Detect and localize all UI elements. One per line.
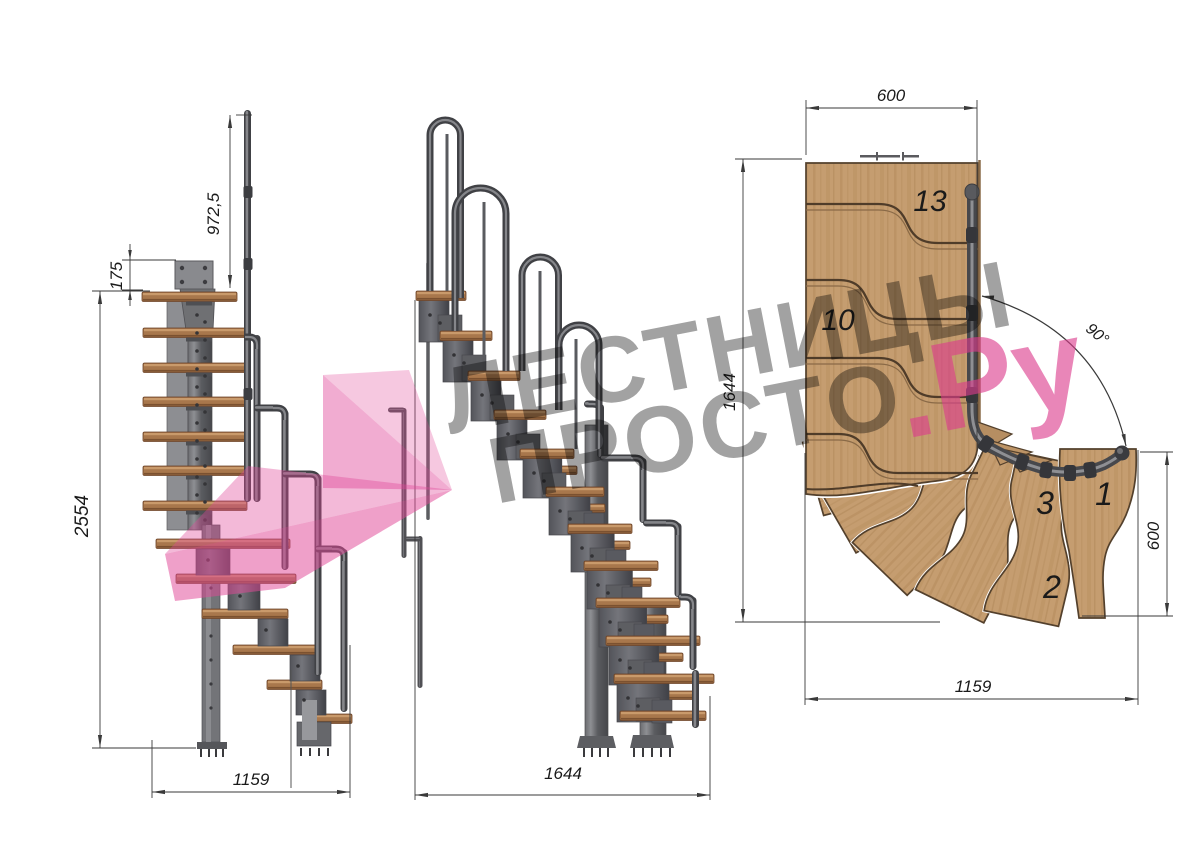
svg-text:2554: 2554 — [72, 495, 93, 538]
svg-text:600: 600 — [1144, 521, 1163, 550]
svg-text:1: 1 — [1095, 476, 1113, 512]
svg-text:175: 175 — [107, 261, 126, 290]
svg-text:1644: 1644 — [544, 764, 582, 783]
svg-text:1159: 1159 — [233, 770, 270, 789]
svg-text:972,5: 972,5 — [204, 192, 223, 235]
svg-text:3: 3 — [1036, 485, 1054, 521]
svg-text:13: 13 — [913, 185, 947, 218]
svg-text:2: 2 — [1042, 569, 1061, 605]
svg-text:1159: 1159 — [955, 677, 992, 696]
svg-text:600: 600 — [877, 86, 906, 105]
